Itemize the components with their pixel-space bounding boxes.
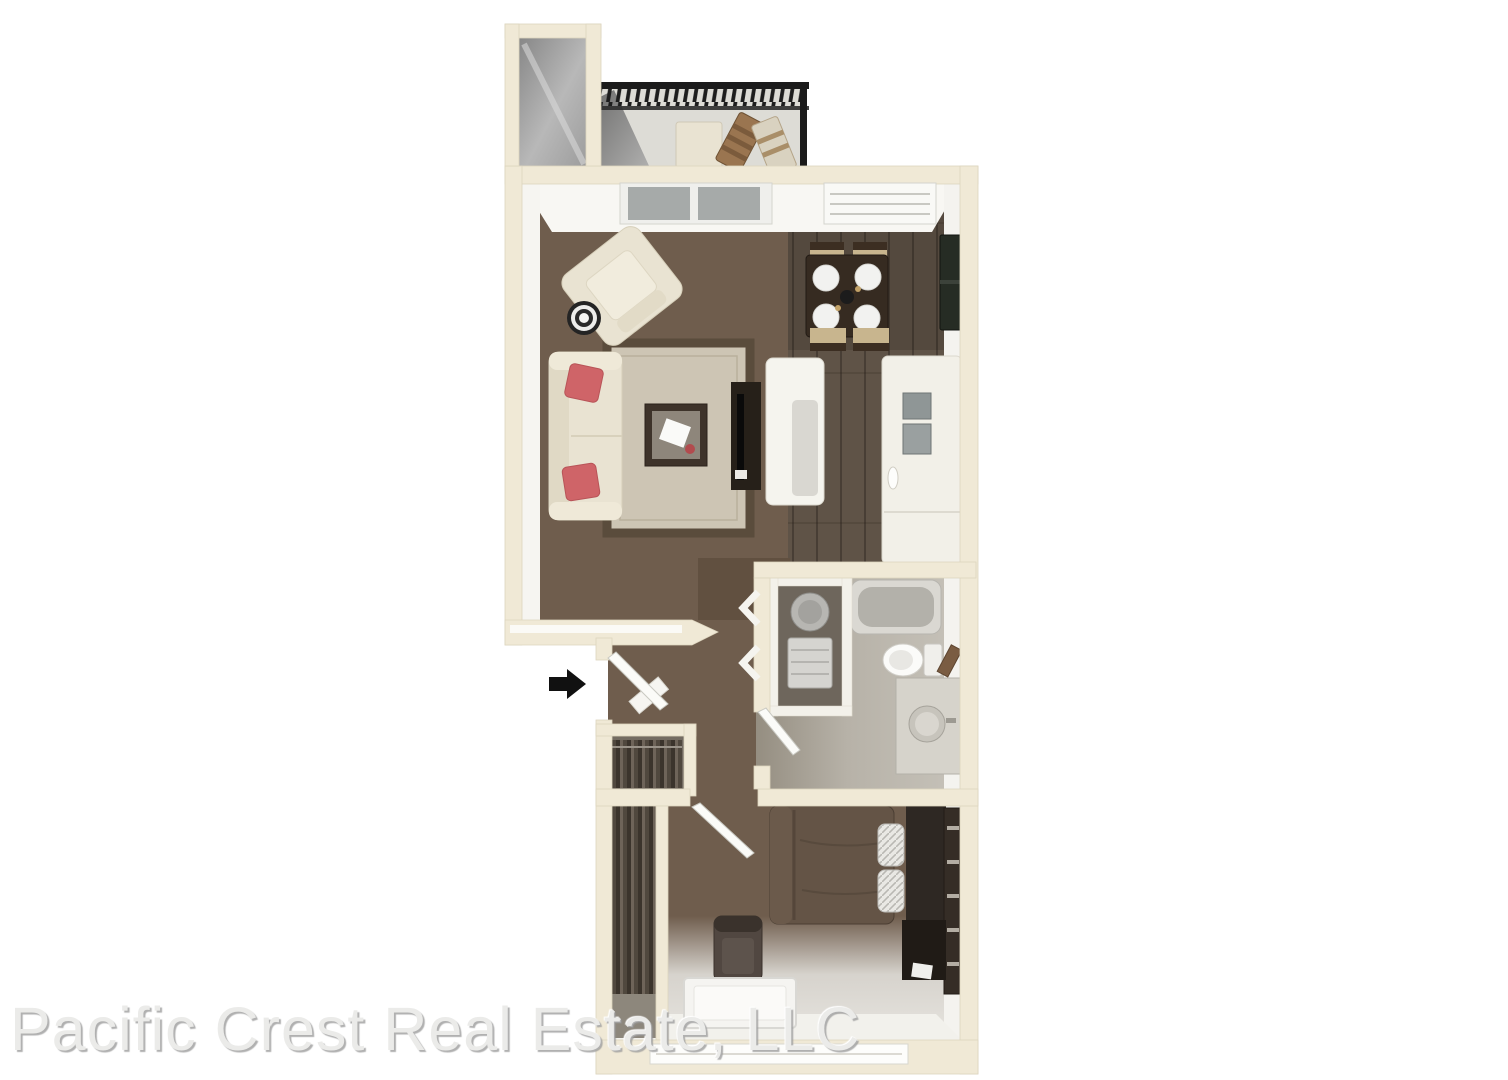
drum-side-table [567, 301, 601, 335]
bed-blanket-fold [770, 806, 792, 924]
bedroom-window [650, 1044, 908, 1064]
bed-pillow-2 [878, 870, 904, 912]
floor-plan-image: Pacific Crest Real Estate, LLC [0, 0, 1508, 1080]
dresser [944, 808, 962, 994]
nightstand [902, 920, 946, 980]
sofa-pillow-1 [564, 363, 604, 403]
kitchen-peninsula-counter [766, 358, 824, 505]
place-setting-plate [855, 264, 881, 290]
bathtub [851, 580, 941, 634]
wall-right-exterior [960, 166, 978, 1074]
kitchen-wall-counter [882, 356, 962, 564]
left-wall-inner-face [522, 184, 540, 622]
wall-storage-closet-left [505, 24, 519, 166]
cabinet-glass-door [903, 393, 931, 419]
dining-chair-bottom-2 [853, 328, 889, 351]
wall-top-exterior [505, 166, 978, 184]
wall-bathroom-left-lower [754, 766, 770, 789]
wall-bedroom-top-left [596, 789, 690, 806]
laundry-closet [768, 576, 852, 716]
place-setting-plate [813, 265, 839, 291]
headboard [906, 804, 946, 926]
table-decor-dot [835, 305, 841, 311]
bedroom-chair [714, 916, 762, 982]
wall-entry-lower [596, 720, 612, 1074]
dining-area [806, 242, 889, 351]
cabinet-handle [888, 467, 898, 489]
washer-lid [798, 600, 822, 624]
table-centerpiece [840, 290, 854, 304]
wall-coat-closet-top [596, 724, 696, 736]
balcony-railing-right-post [800, 82, 807, 170]
dining-window [824, 183, 936, 224]
balcony-railing-slats [599, 89, 807, 106]
cabinet-glass-door [903, 424, 931, 454]
wall-bathroom-top [754, 562, 976, 578]
living-room-window [620, 183, 772, 224]
entry-arrow-icon [549, 669, 586, 699]
laundry-closet-wall-right [842, 576, 852, 716]
coffee-table [645, 404, 707, 466]
place-setting-plate [854, 305, 880, 331]
vanity-sink [896, 678, 962, 774]
wall-coat-closet-right [684, 724, 696, 796]
bed [770, 804, 946, 926]
coat-closet [608, 736, 684, 794]
wall-living-bottom-face [510, 625, 682, 633]
wall-left-exterior [505, 166, 522, 645]
laundry-closet-wall-bottom [768, 706, 852, 716]
wall-bedroom-top-right [758, 789, 978, 806]
dining-chair-bottom-1 [810, 328, 846, 351]
balcony-railing-bottom-bar [597, 106, 809, 110]
bedroom-floor-table [684, 978, 796, 1028]
balcony-table [676, 122, 722, 168]
sofa [549, 352, 622, 520]
table-decor-dot [855, 286, 861, 292]
bedroom-closet-clothes [610, 806, 656, 994]
wall-bedroom-closet-partition [656, 806, 668, 1040]
tv-console [731, 382, 761, 490]
sofa-pillow-2 [562, 463, 601, 502]
floor-plan-canvas [0, 0, 1508, 1080]
toilet [883, 644, 942, 676]
balcony-railing-top-bar [597, 82, 809, 89]
bed-pillow-1 [878, 824, 904, 866]
bedroom-closet-open-floor [610, 994, 656, 1038]
wall-storage-closet-right [586, 24, 601, 166]
bedroom-closet [610, 806, 656, 1038]
